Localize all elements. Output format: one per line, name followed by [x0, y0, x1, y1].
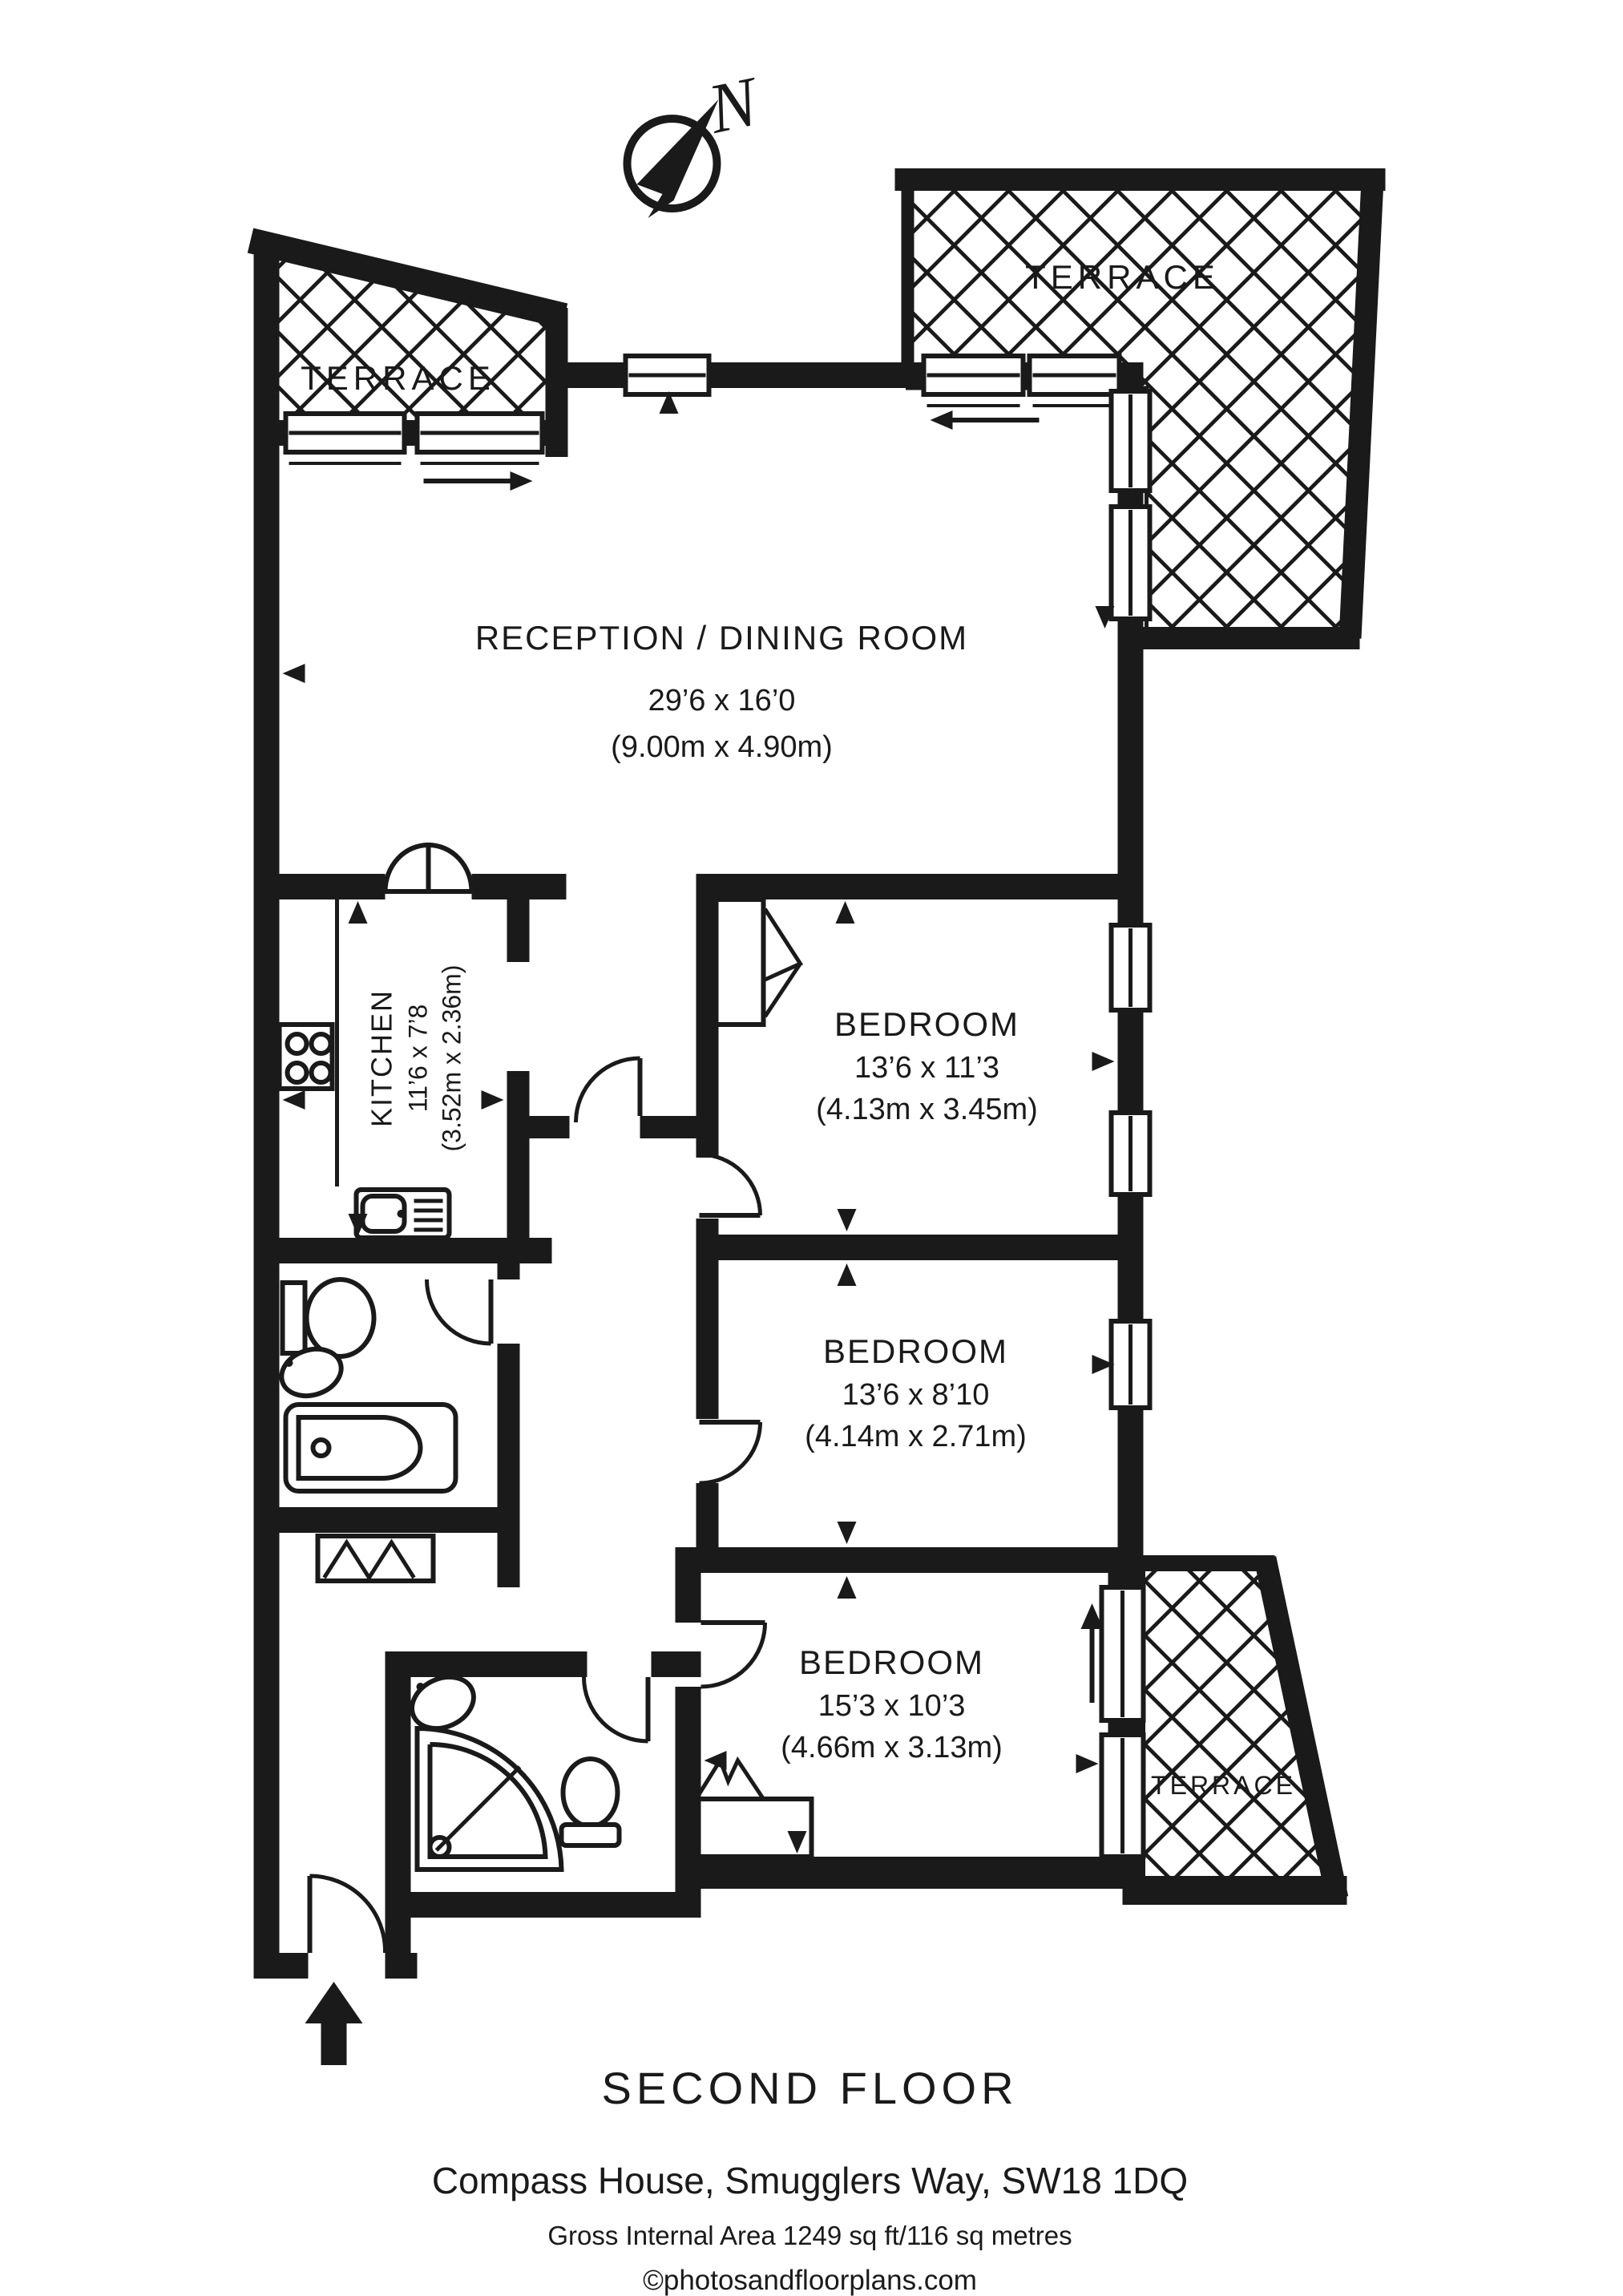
bedroom1-metric: (4.13m x 3.45m)	[816, 1093, 1038, 1126]
bedroom3-imperial: 15’3 x 10’3	[818, 1689, 966, 1723]
terrace-bottom-right-label: TERRACE	[1151, 1771, 1296, 1800]
kitchen-double-door-left	[386, 845, 429, 891]
bedroom2-metric: (4.14m x 2.71m)	[805, 1420, 1027, 1453]
reception-imperial: 29’6 x 16’0	[648, 684, 796, 717]
floorplan-page: N TERRACE TERRACE TERRACE RECEPTION / DI…	[0, 0, 1623, 2296]
reception-name: RECEPTION / DINING ROOM	[475, 619, 968, 657]
footer-floor-title: SECOND FLOOR	[601, 2063, 1018, 2113]
fixtures	[276, 899, 812, 1870]
entrance-arrow-icon	[305, 1982, 363, 2065]
footer: SECOND FLOOR Compass House, Smugglers Wa…	[432, 2063, 1188, 2296]
footer-address: Compass House, Smugglers Way, SW18 1DQ	[432, 2160, 1188, 2201]
bathtub-icon	[286, 1405, 456, 1491]
terrace-top-right-label: TERRACE	[1025, 258, 1220, 296]
shower-toilet-icon	[562, 1759, 620, 1845]
bedroom3-name: BEDROOM	[799, 1643, 984, 1681]
bedroom1-name: BEDROOM	[834, 1005, 1019, 1043]
floor-plan-svg: N TERRACE TERRACE TERRACE RECEPTION / DI…	[0, 0, 1623, 2296]
wardrobe-bedroom1-icon	[706, 899, 801, 1025]
hob-icon	[280, 1025, 333, 1089]
room-bedroom3-label: BEDROOM 15’3 x 10’3 (4.66m x 3.13m)	[781, 1643, 1003, 1764]
room-reception-label: RECEPTION / DINING ROOM 29’6 x 16’0 (9.0…	[475, 619, 968, 764]
shower-icon	[418, 1728, 562, 1870]
bedroom1-imperial: 13’6 x 11’3	[854, 1051, 999, 1085]
footer-copyright: ©photosandfloorplans.com	[643, 2265, 977, 2296]
room-bedroom2-label: BEDROOM 13’6 x 8’10 (4.14m x 2.71m)	[805, 1332, 1027, 1453]
compass-icon: N	[628, 63, 768, 218]
kitchen-imperial: 11’6 x 7’8	[404, 1004, 433, 1113]
kitchen-metric: (3.52m x 2.36m)	[438, 965, 466, 1152]
reception-metric: (9.00m x 4.90m)	[611, 730, 833, 764]
kitchen-sink-icon	[357, 1190, 450, 1238]
wardrobe-lobby-icon	[318, 1536, 434, 1581]
toilet-icon	[283, 1279, 374, 1356]
room-bedroom1-label: BEDROOM 13’6 x 11’3 (4.13m x 3.45m)	[816, 1005, 1038, 1126]
kitchen-name: KITCHEN	[365, 989, 398, 1127]
terrace-top-left-label: TERRACE	[301, 359, 495, 397]
kitchen-double-door-right	[429, 845, 472, 891]
bedroom2-name: BEDROOM	[823, 1332, 1008, 1370]
footer-area: Gross Internal Area 1249 sq ft/116 sq me…	[547, 2221, 1072, 2250]
room-kitchen-label: KITCHEN 11’6 x 7’8 (3.52m x 2.36m)	[365, 965, 466, 1152]
bedroom3-metric: (4.66m x 3.13m)	[781, 1731, 1003, 1764]
bedroom2-imperial: 13’6 x 8’10	[842, 1378, 990, 1412]
